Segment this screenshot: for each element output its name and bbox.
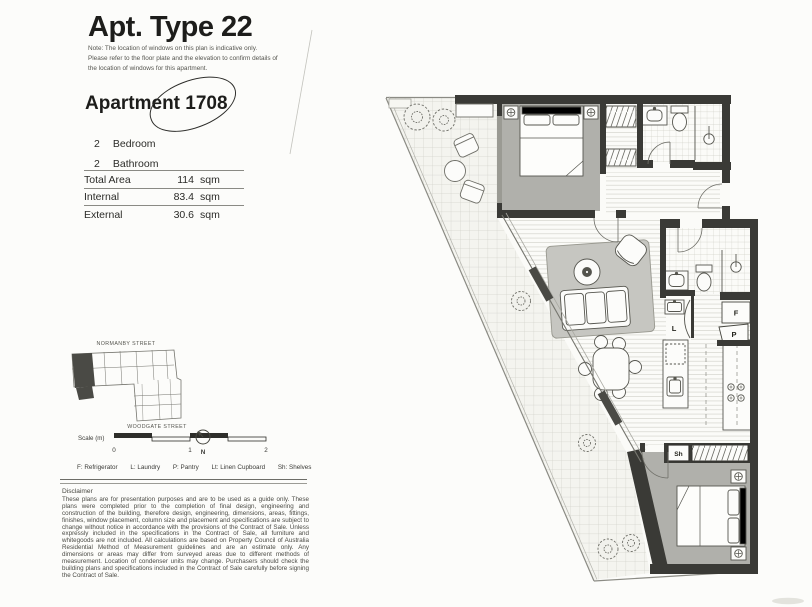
scale-tick-0: 0	[112, 447, 116, 454]
dining-chair	[579, 363, 592, 376]
total-area-label: Total Area	[84, 174, 156, 186]
legend-laundry: L: Laundry	[130, 464, 160, 471]
bathroom-count: 2	[94, 158, 110, 170]
pillow	[728, 518, 739, 543]
pillow	[524, 115, 550, 125]
external-area-label: External	[84, 209, 156, 221]
scan-fold-line	[270, 28, 320, 158]
north-compass: N	[190, 427, 218, 459]
scale-tick-2: 2	[264, 447, 268, 454]
wall-top	[455, 95, 731, 104]
bedroom-count: 2	[94, 138, 110, 150]
dining-chair	[629, 361, 642, 374]
plant	[598, 539, 618, 559]
disclaimer-heading: Disclaimer	[62, 488, 309, 495]
bedroom-label: Bedroom	[113, 138, 156, 150]
area-row-external: External 30.6 sqm	[84, 206, 244, 223]
divider-line	[60, 479, 307, 484]
scan-artifact	[772, 598, 804, 604]
external-area-value: 30.6	[156, 209, 200, 221]
planter-box	[456, 104, 493, 117]
internal-area-value: 83.4	[156, 191, 200, 203]
legend-refrigerator: F: Refrigerator	[77, 464, 118, 471]
condenser-unit	[389, 99, 411, 108]
plan-legend: F: Refrigerator L: Laundry P: Pantry Lt:…	[77, 464, 327, 471]
north-label: N	[201, 449, 206, 456]
plant	[433, 109, 455, 131]
dining-table	[593, 348, 629, 390]
area-row-internal: Internal 83.4 sqm	[84, 189, 244, 207]
legend-pantry: P: Pantry	[173, 464, 199, 471]
bathroom-label: Bathroom	[113, 158, 159, 170]
page-title: Apt. Type 22	[88, 11, 252, 44]
pantry-label: P	[731, 330, 736, 339]
internal-area-label: Internal	[84, 191, 156, 203]
area-table: Total Area 114 sqm Internal 83.4 sqm Ext…	[84, 170, 244, 223]
toilet	[696, 265, 712, 272]
pillow	[553, 115, 579, 125]
disclaimer-body: These plans are for presentation purpose…	[62, 497, 309, 580]
plant	[512, 292, 531, 311]
laundry-label: L	[672, 324, 677, 333]
bathroom-count-row: 2 Bathroom	[94, 158, 158, 170]
bedroom1-window-wall	[497, 104, 502, 217]
apartment-location-highlight	[72, 353, 95, 400]
outdoor-table	[445, 161, 466, 182]
shelves-label: Sh	[674, 451, 682, 458]
area-row-total: Total Area 114 sqm	[84, 171, 244, 189]
island-bench	[663, 340, 688, 408]
disclaimer-block: Disclaimer These plans are for presentat…	[62, 488, 309, 580]
pillow	[728, 490, 739, 515]
legend-linen: Lt: Linen Cupboard	[212, 464, 266, 471]
kitchen-counter	[723, 340, 752, 430]
toilet	[671, 106, 688, 113]
handwritten-circle-annotation	[142, 65, 243, 142]
scale-label: Scale (m)	[78, 435, 104, 442]
dining-chair	[595, 336, 608, 349]
legend-shelves: Sh: Shelves	[278, 464, 312, 471]
wall-right-lower	[750, 219, 758, 574]
floorplan-page: Apt. Type 22 Note: The location of windo…	[0, 0, 812, 607]
plant	[404, 104, 430, 130]
total-area-unit: sqm	[200, 174, 220, 186]
total-area-value: 114	[156, 174, 200, 186]
plant	[579, 435, 596, 452]
street-label-top: NORMANBY STREET	[97, 341, 156, 347]
internal-area-unit: sqm	[200, 191, 220, 203]
scale-bar: Scale (m) 0 1 2	[78, 430, 278, 456]
locator-map: NORMANBY STREET WOODGATE STREET	[62, 336, 192, 430]
plant	[623, 535, 640, 552]
bedroom-count-row: 2 Bedroom	[94, 138, 158, 150]
external-area-unit: sqm	[200, 209, 220, 221]
floor-plan: F P L Sh	[330, 55, 812, 607]
fridge-label: F	[734, 309, 739, 318]
window-note: Note: The location of windows on this pl…	[88, 44, 278, 74]
